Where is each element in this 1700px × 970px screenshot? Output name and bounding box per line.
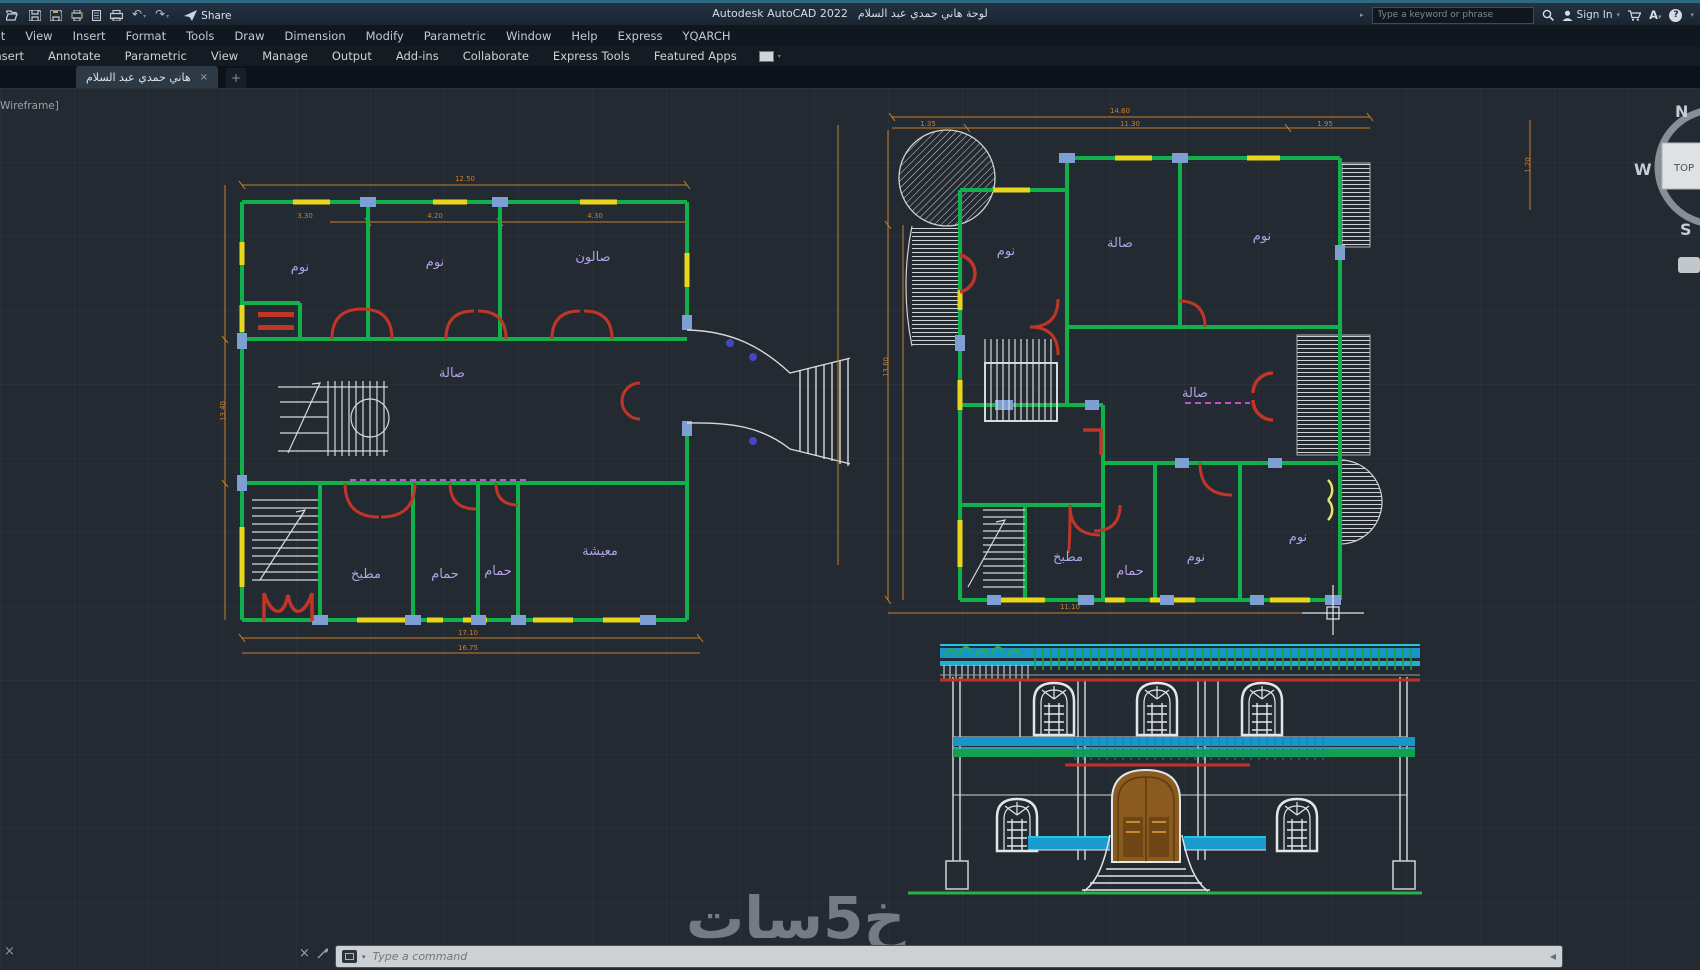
balcony-hatches xyxy=(899,130,1382,544)
visual-style-label[interactable]: Wireframe] xyxy=(0,100,59,112)
menu-modify[interactable]: Modify xyxy=(356,29,414,43)
svg-text:14.60: 14.60 xyxy=(1110,107,1130,115)
svg-text:13.60: 13.60 xyxy=(882,357,890,377)
mid-balustrade xyxy=(953,737,1415,765)
drawing-file-tab[interactable]: هاني حمدي عبد السلام × xyxy=(76,66,218,88)
menu-tools[interactable]: Tools xyxy=(176,29,224,43)
svg-text:13.40: 13.40 xyxy=(219,401,227,421)
store-cart-icon[interactable] xyxy=(1628,6,1641,25)
menu-help[interactable]: Help xyxy=(561,29,607,43)
roof-parapet xyxy=(940,645,1420,680)
new-drawing-tab-button[interactable]: + xyxy=(226,68,246,88)
room-label-hall-mid: صالة xyxy=(1182,386,1208,401)
ribbon-tab-featured-apps[interactable]: Featured Apps xyxy=(642,49,749,63)
ribbon-tab-collaborate[interactable]: Collaborate xyxy=(451,49,541,63)
menu-parametric[interactable]: Parametric xyxy=(414,29,496,43)
ribbon-tab-bar: Insert Annotate Parametric View Manage O… xyxy=(0,46,1700,66)
room-label-bath1: حمام xyxy=(431,567,459,582)
app-title: Autodesk AutoCAD 2022 xyxy=(712,7,848,20)
new-tab-glyph: + xyxy=(231,71,241,85)
ribbon-tab-parametric[interactable]: Parametric xyxy=(113,49,199,63)
stair-lower-left xyxy=(252,500,318,580)
print-icon[interactable] xyxy=(110,10,123,21)
svg-text:1.35: 1.35 xyxy=(920,120,936,128)
room-label-bed2: نوم xyxy=(426,255,444,270)
keyword-search-input[interactable] xyxy=(1372,7,1534,24)
front-elevation xyxy=(860,585,1430,905)
menu-window[interactable]: Window xyxy=(496,29,561,43)
command-icon[interactable] xyxy=(342,950,357,963)
viewcube-south: S xyxy=(1680,220,1692,239)
room-labels: نوم نوم صالون صالة مطبخ حمام حمام معيشة xyxy=(291,250,618,582)
room-label-hall: صالة xyxy=(439,366,465,381)
ribbon-tab-view[interactable]: View xyxy=(199,49,250,63)
room-label-bath2: حمام xyxy=(484,564,512,579)
open-icon[interactable] xyxy=(6,10,20,21)
menu-bar: Edit View Insert Format Tools Draw Dimen… xyxy=(0,25,1700,46)
file-tab-close-icon[interactable]: × xyxy=(200,72,208,83)
room-label-bed1: نوم xyxy=(291,260,309,275)
entrance-door xyxy=(1112,770,1180,862)
room-label-bath: حمام xyxy=(1116,564,1144,579)
menu-view[interactable]: View xyxy=(15,29,62,43)
drawing-canvas[interactable]: Wireframe] xyxy=(0,88,1700,970)
svg-text:17.10: 17.10 xyxy=(458,629,478,637)
window-title: Autodesk AutoCAD 2022 لوحة هاني حمدي عبد… xyxy=(712,7,988,20)
save-icon[interactable] xyxy=(29,10,41,21)
ribbon-tab-express-tools[interactable]: Express Tools xyxy=(541,49,642,63)
room-label-kitchen: مطبخ xyxy=(351,567,381,582)
menu-format[interactable]: Format xyxy=(116,29,177,43)
stair-hall xyxy=(278,381,389,456)
share-label: Share xyxy=(201,10,231,22)
floor-plan-first: 14.60 1.35 11.30 1.95 13.60 11.10 1.20 xyxy=(830,95,1550,635)
sheet-icon[interactable] xyxy=(92,10,101,21)
upper-window-right xyxy=(1242,683,1282,735)
commandline-close-icon[interactable]: × xyxy=(299,946,310,961)
svg-text:4.30: 4.30 xyxy=(587,212,603,220)
commandline-controls: × xyxy=(299,946,328,961)
ribbon-toggle-icon xyxy=(759,51,774,62)
ribbon-tab-insert[interactable]: Insert xyxy=(0,49,36,63)
redo-button[interactable]: ↷▾ xyxy=(155,8,169,23)
command-expand-icon[interactable]: ◀ xyxy=(1550,952,1556,961)
menu-express[interactable]: Express xyxy=(608,29,673,43)
command-caret-icon[interactable]: ▾ xyxy=(362,953,366,961)
menu-dimension[interactable]: Dimension xyxy=(274,29,355,43)
plot-icon[interactable] xyxy=(71,10,83,21)
collapse-search-icon[interactable]: ▸ xyxy=(1360,11,1364,19)
undo-button[interactable]: ↶▾ xyxy=(132,8,146,23)
file-tab-strip: هاني حمدي عبد السلام × + xyxy=(0,66,1700,88)
autocad-window: ↶▾ ↷▾ Share Autodesk AutoCAD 2022 لوحة ه… xyxy=(0,0,1700,970)
search-icon[interactable] xyxy=(1542,6,1554,25)
floor-plan-ground: 12.50 3.30 4.20 4.30 13.40 17.10 16.75 xyxy=(200,165,850,665)
share-plane-icon xyxy=(184,10,197,21)
svg-text:16.75: 16.75 xyxy=(458,644,478,652)
titlebar-right-cluster: ▸ Sign In ▾ A▾ ? ▾ xyxy=(1360,6,1694,24)
room-label-salon: صالون xyxy=(575,250,610,265)
svg-text:3.30: 3.30 xyxy=(297,212,313,220)
svg-text:1.20: 1.20 xyxy=(1524,157,1532,173)
title-bar: ↶▾ ↷▾ Share Autodesk AutoCAD 2022 لوحة ه… xyxy=(0,0,1700,25)
menu-draw[interactable]: Draw xyxy=(224,29,274,43)
walls xyxy=(960,158,1340,600)
menu-yqarch[interactable]: YQARCH xyxy=(672,29,740,43)
lower-window-right xyxy=(1277,799,1317,851)
document-title: لوحة هاني حمدي عبد السلام xyxy=(858,7,988,20)
room-label-living: معيشة xyxy=(582,544,618,559)
command-line-bar[interactable]: ▾ ◀ xyxy=(335,945,1563,968)
ribbon-tab-output[interactable]: Output xyxy=(320,49,384,63)
sign-in-label: Sign In xyxy=(1577,9,1613,21)
sign-in-caret-icon: ▾ xyxy=(1617,11,1621,19)
menu-edit[interactable]: Edit xyxy=(0,29,15,43)
svg-text:4.20: 4.20 xyxy=(427,212,443,220)
sign-in-button[interactable]: Sign In ▾ xyxy=(1562,9,1621,21)
watermark-khamsat: خ5سات xyxy=(686,884,905,952)
viewcube-north: N xyxy=(1675,102,1688,121)
room-label-bed2: نوم xyxy=(1253,229,1271,244)
help-button[interactable]: ? xyxy=(1669,9,1682,22)
room-label-bed1: نوم xyxy=(997,244,1015,259)
ribbon-display-toggle[interactable]: ▾ xyxy=(759,51,781,62)
commandline-customize-icon[interactable] xyxy=(317,948,328,959)
upper-window-left xyxy=(1034,683,1074,735)
svg-text:12.50: 12.50 xyxy=(455,175,475,183)
viewcube-west: W xyxy=(1634,160,1652,179)
ribbon-tab-addins[interactable]: Add-ins xyxy=(384,49,451,63)
upper-window-center xyxy=(1137,683,1177,735)
svg-text:1.95: 1.95 xyxy=(1317,120,1333,128)
share-button[interactable]: Share xyxy=(184,10,231,22)
room-label-bed3: نوم xyxy=(1187,550,1205,565)
user-icon xyxy=(1562,10,1573,21)
ribbon-tab-manage[interactable]: Manage xyxy=(250,49,320,63)
room-label-hall-top: صالة xyxy=(1107,236,1133,251)
entrance-stair xyxy=(687,330,850,472)
viewcube-top-label: TOP xyxy=(1673,163,1694,174)
window-sills xyxy=(955,153,1345,605)
font-size-button[interactable]: A▾ xyxy=(1649,8,1661,22)
help-caret-icon: ▾ xyxy=(1690,11,1694,19)
file-tab-title: هاني حمدي عبد السلام xyxy=(86,71,191,84)
bottom-left-close-icon[interactable]: × xyxy=(4,944,15,959)
navbar-fragment[interactable] xyxy=(1678,257,1700,273)
svg-text:11.30: 11.30 xyxy=(1120,120,1140,128)
room-label-bed4: نوم xyxy=(1289,530,1307,545)
save-as-icon[interactable] xyxy=(50,10,62,21)
quick-access-toolbar: ↶▾ ↷▾ Share xyxy=(6,8,231,23)
viewcube[interactable]: TOP N W S xyxy=(1630,95,1700,280)
room-label-kitchen: مطبخ xyxy=(1053,550,1083,565)
command-input[interactable] xyxy=(371,949,1545,964)
ribbon-tab-annotate[interactable]: Annotate xyxy=(36,49,113,63)
stair-lower xyxy=(968,510,1025,587)
menu-insert[interactable]: Insert xyxy=(63,29,116,43)
